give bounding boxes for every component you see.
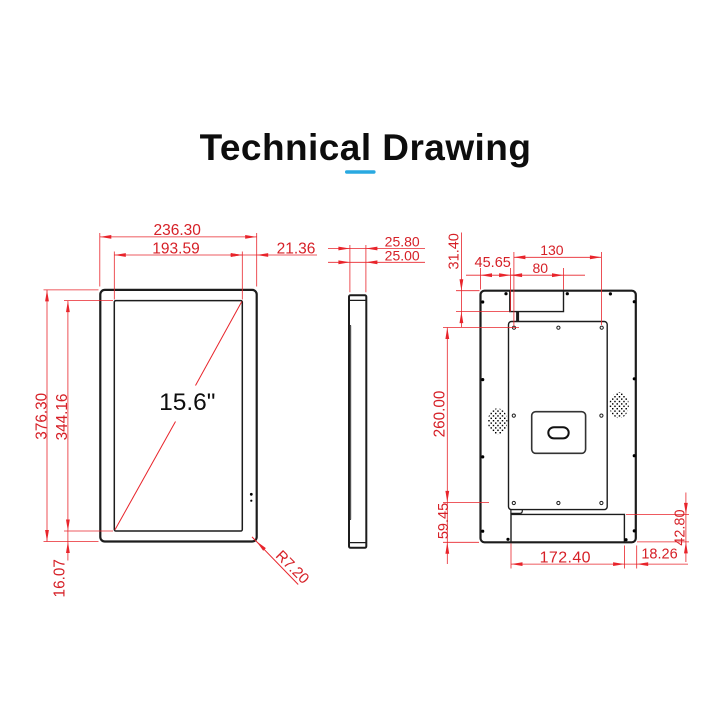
svg-text:130: 130 [540,242,564,258]
svg-text:15.6": 15.6" [159,389,215,416]
svg-text:80: 80 [533,260,549,276]
svg-text:344.16: 344.16 [54,394,71,441]
svg-text:25.00: 25.00 [385,247,420,263]
svg-text:16.07: 16.07 [52,559,69,597]
svg-text:21.36: 21.36 [277,241,316,258]
svg-text:18.26: 18.26 [641,547,677,563]
svg-text:Technical Drawing: Technical Drawing [200,127,532,168]
svg-text:172.40: 172.40 [540,550,591,567]
svg-text:376.30: 376.30 [34,393,51,440]
svg-text:59.45: 59.45 [436,503,452,539]
svg-text:42.80: 42.80 [673,509,689,545]
svg-text:260.00: 260.00 [432,391,449,438]
svg-text:236.30: 236.30 [153,222,201,239]
svg-text:193.59: 193.59 [152,241,199,258]
svg-text:31.40: 31.40 [446,233,462,269]
svg-text:45.65: 45.65 [475,255,511,271]
